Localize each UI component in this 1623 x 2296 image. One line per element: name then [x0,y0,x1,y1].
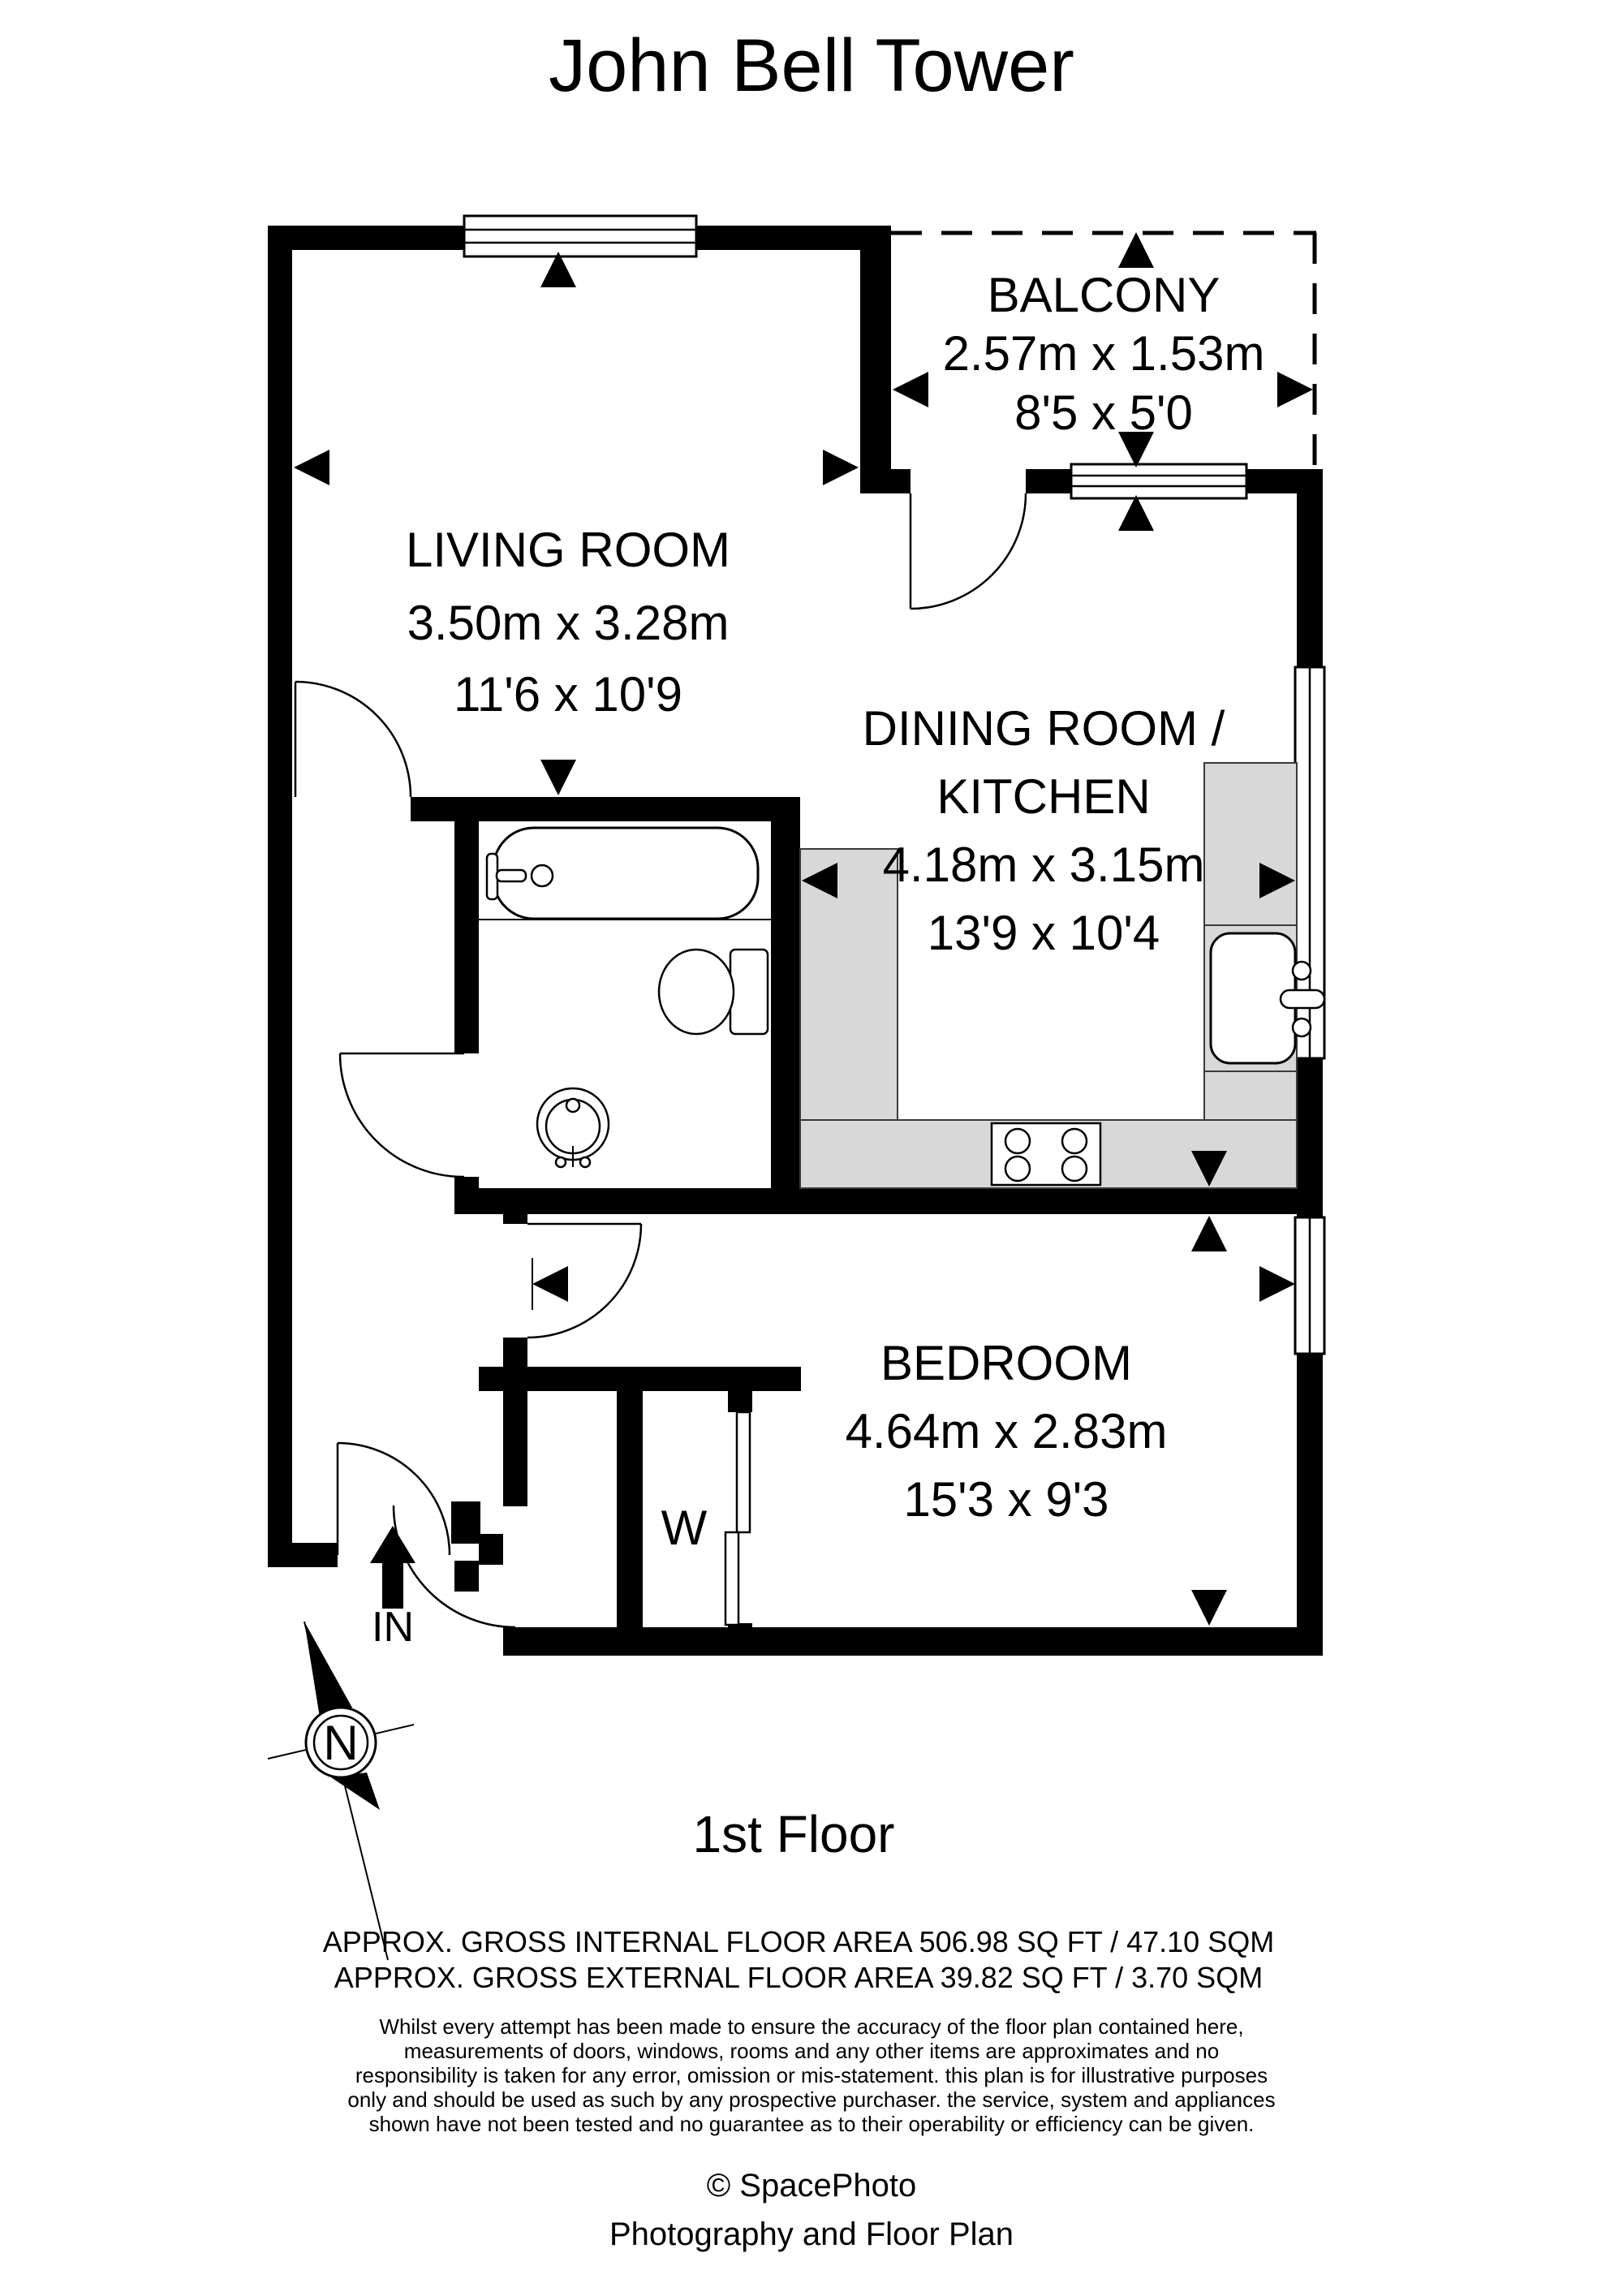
dining-room-name-line1: DINING ROOM / [863,701,1225,756]
arrow-right-icon [823,450,859,485]
wardrobe-label: W [661,1501,708,1555]
floor-plan: LIVING ROOM 3.50m x 3.28m 11'6 x 10'9 BA… [268,216,1324,1960]
arrow-right-icon [1259,1266,1295,1302]
area-summary: APPROX. GROSS INTERNAL FLOOR AREA 506.98… [323,1925,1274,1994]
floor-plan-page: John Bell Tower [0,0,1623,2296]
wall-segment [860,226,891,471]
wall-segment [479,1534,503,1565]
compass-north-needle [304,1622,352,1717]
arrow-down-icon [1191,1590,1227,1626]
external-area-text: APPROX. GROSS EXTERNAL FLOOR AREA 39.82 … [334,1961,1263,1994]
arrow-up-icon [1118,495,1154,531]
wall-segment [268,226,464,250]
living-room-metric: 3.50m x 3.28m [407,596,730,650]
bathroom [479,828,771,1167]
wall-segment [503,1214,527,1224]
wardrobe-sliding-doors [725,1412,750,1625]
balcony-imperial: 8'5 x 5'0 [1014,386,1193,440]
floor-label: 1st Floor [693,1805,895,1863]
living-room-name: LIVING ROOM [406,523,730,577]
entrance-arrow-shaft [382,1563,403,1609]
arrow-down-icon [540,760,576,795]
wall-segment [696,226,885,250]
dining-room-imperial: 13'9 x 10'4 [928,906,1160,960]
window-living-top [464,216,696,256]
wall-segment [411,797,800,821]
wall-segment [728,1391,752,1412]
arrow-left-icon [532,1266,568,1302]
wall-segment [1297,1354,1323,1656]
disclaimer: Whilst every attempt has been made to en… [347,2014,1275,2136]
disclaimer-line: only and should be used as such by any p… [347,2087,1275,2112]
compass: N [268,1622,414,1960]
wall-segment [1297,493,1323,667]
compass-north-label: N [323,1716,358,1770]
bedroom-name: BEDROOM [880,1336,1132,1390]
wall-segment [454,1561,479,1592]
arrow-up-icon [1191,1216,1227,1251]
wall-segment [479,1367,801,1391]
kitchen-counters [800,763,1324,1188]
balcony-name: BALCONY [988,268,1220,322]
wall-segment [454,1188,1323,1214]
wall-segment [454,821,479,1053]
wall-segment [1026,469,1071,493]
dining-room-metric: 4.18m x 3.15m [883,838,1205,892]
disclaimer-line: shown have not been tested and no guaran… [369,2112,1255,2136]
bedroom-imperial: 15'3 x 9'3 [903,1472,1109,1527]
wall-segment [503,1338,527,1506]
wall-segment [268,226,292,1567]
disclaimer-line: responsibility is taken for any error, o… [355,2063,1268,2087]
hob [992,1123,1100,1185]
internal-area-text: APPROX. GROSS INTERNAL FLOOR AREA 506.98… [323,1925,1274,1958]
bathtub [487,828,758,919]
credit-copyright: © SpacePhoto [707,2168,917,2203]
entrance: IN [370,1526,415,1651]
wall-segment [268,1543,338,1567]
disclaimer-line: Whilst every attempt has been made to en… [379,2014,1243,2039]
toilet [659,950,768,1034]
wall-segment [1246,469,1323,493]
entrance-arrow-icon [370,1526,415,1563]
dining-room-name-line2: KITCHEN [936,769,1150,824]
door-living-hall [295,682,411,797]
living-room-imperial: 11'6 x 10'9 [454,667,682,722]
window-balcony-dining [1071,464,1246,498]
wall-segment [860,469,911,493]
door-bathroom [340,1053,464,1177]
arrow-up-icon [1118,232,1154,268]
wall-segment [617,1391,643,1656]
door-balcony [911,493,1026,609]
wall-segment [503,1627,1323,1656]
balcony-metric: 2.57m x 1.53m [943,326,1265,381]
credit: © SpacePhoto Photography and Floor Plan [609,2168,1014,2252]
arrow-left-icon [893,372,928,407]
arrow-left-icon [294,450,329,485]
credit-tagline: Photography and Floor Plan [609,2216,1014,2252]
wall-segment [771,821,800,1188]
page-title: John Bell Tower [549,24,1074,107]
disclaimer-line: measurements of doors, windows, rooms an… [404,2039,1219,2063]
entrance-label: IN [372,1604,414,1651]
arrow-right-icon [1277,372,1313,407]
window-bedroom-right [1295,1217,1324,1354]
bedroom-metric: 4.64m x 2.83m [846,1404,1168,1458]
basin [537,1088,609,1167]
wall-segment [451,1501,480,1544]
